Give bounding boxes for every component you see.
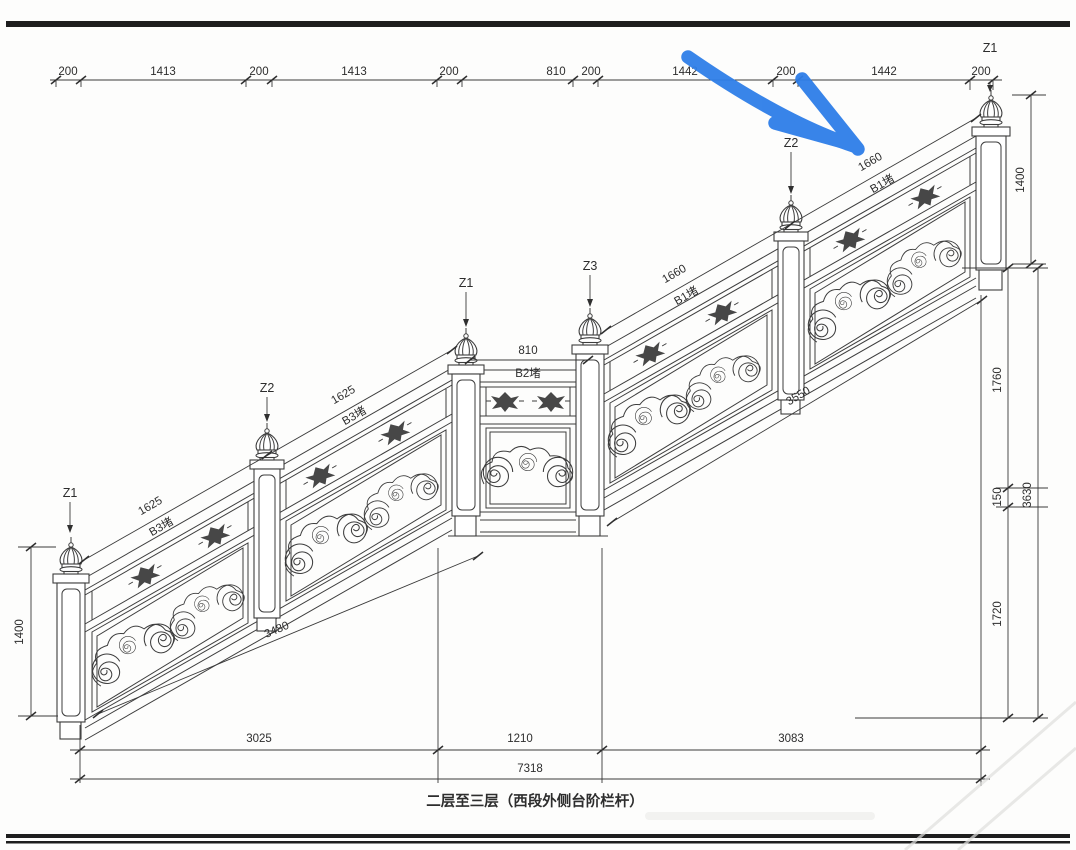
bottom-frame-line-2: [6, 841, 1070, 844]
dim-top-0: 200: [58, 66, 77, 78]
railing-elevation-drawing: 200 1413 200 1413 200 810 200 1442 200 1…: [0, 0, 1076, 850]
dim-left-post-height: 1400: [14, 619, 26, 645]
dim-right-landing-edge: 150: [992, 487, 1004, 506]
left-dimension: 1400: [14, 543, 58, 720]
dim-top-4: 200: [439, 66, 458, 78]
top-dimension-chain: 200 1413 200 1413 200 810 200 1442 200 1…: [50, 66, 1002, 90]
post-z1-mid: [448, 328, 484, 536]
dim-bottom-lower-run: 3025: [246, 733, 272, 745]
cloud-scroll-carvings: [80, 228, 966, 690]
dim-top-10: 200: [971, 66, 990, 78]
dim-right-upper-rise: 1760: [992, 367, 1004, 393]
post-z3: [572, 308, 608, 536]
drawing-title: 二层至三层（西段外侧台阶栏杆）: [426, 792, 644, 810]
screenshot-root: 200 1413 200 1413 200 810 200 1442 200 1…: [0, 0, 1076, 850]
post-label-z3: Z3: [583, 259, 598, 273]
dim-bottom-landing-run: 1210: [507, 733, 533, 745]
post-labels: Z1 Z2 Z1 Z3 Z2 Z1: [63, 41, 998, 533]
post-label-z2-upper: Z2: [784, 136, 799, 150]
balustrade-structure: [53, 90, 1010, 740]
label-upper-bay1-panel: B1堵: [671, 283, 701, 308]
dim-top-1: 1413: [150, 66, 176, 78]
cloud-panel-frames: [92, 197, 970, 712]
label-upper-bay2-panel: B1堵: [867, 171, 897, 196]
top-frame-line: [6, 21, 1070, 27]
dim-top-3: 1413: [341, 66, 367, 78]
dim-top-9: 1442: [871, 66, 897, 78]
post-label-z2-lower: Z2: [260, 381, 275, 395]
post-label-z1-right: Z1: [983, 41, 998, 55]
dim-lower-bay2-length: 1625: [329, 384, 357, 407]
label-lower-bay1-panel: B3堵: [146, 514, 176, 539]
post-label-z1-left: Z1: [63, 486, 78, 500]
post-z1-right: [972, 90, 1010, 290]
dim-top-5: 810: [546, 66, 565, 78]
dim-top-8: 200: [776, 66, 795, 78]
dim-bottom-total-run: 7318: [517, 763, 543, 775]
dim-top-6: 200: [581, 66, 600, 78]
bottom-frame-line-1: [6, 834, 1070, 838]
label-landing-bay-panel: B2堵: [515, 366, 541, 380]
dim-right-lower-rise: 1720: [992, 601, 1004, 627]
post-label-z1-mid: Z1: [459, 276, 474, 290]
dim-top-2: 200: [249, 66, 268, 78]
watermark: [645, 702, 1076, 850]
dim-right-post-height: 1400: [1015, 167, 1027, 193]
dim-lower-bay1-length: 1625: [136, 495, 164, 518]
post-z2-upper: [774, 195, 808, 414]
dim-bottom-upper-run: 3083: [778, 733, 804, 745]
dim-right-total-rise: 3630: [1022, 482, 1034, 508]
hand-drawn-arrow-annotation: [688, 57, 858, 149]
dim-upper-bay1-length: 1660: [660, 263, 688, 286]
post-z1-left: [53, 537, 89, 739]
bracket-band-end-blocks: [92, 156, 970, 620]
dim-landing-bay-length: 810: [518, 345, 537, 357]
